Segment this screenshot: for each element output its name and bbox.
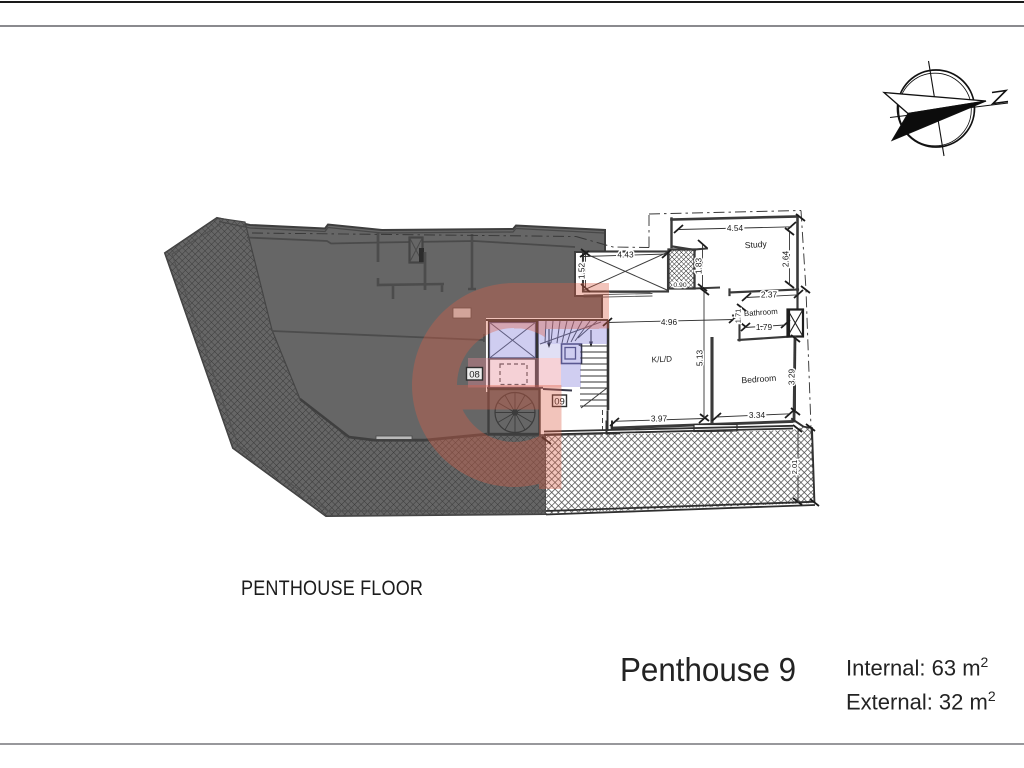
svg-text:Bedroom: Bedroom (741, 373, 776, 385)
svg-text:0.90: 0.90 (673, 282, 686, 289)
svg-text:1.71: 1.71 (734, 309, 743, 323)
svg-text:3.97: 3.97 (651, 414, 668, 424)
svg-text:2.64: 2.64 (781, 251, 791, 268)
svg-text:2.37: 2.37 (761, 290, 778, 300)
svg-text:2.01: 2.01 (790, 460, 799, 474)
svg-text:1.79: 1.79 (756, 322, 773, 332)
svg-text:Study: Study (744, 239, 767, 251)
svg-text:4.43: 4.43 (617, 250, 634, 260)
svg-text:1.52: 1.52 (577, 263, 587, 280)
svg-text:3.29: 3.29 (787, 369, 797, 386)
svg-text:3.34: 3.34 (749, 410, 766, 420)
svg-text:5.13: 5.13 (695, 350, 705, 367)
svg-text:K/L/D: K/L/D (651, 354, 672, 364)
svg-text:4.96: 4.96 (661, 317, 678, 327)
svg-text:08: 08 (469, 370, 480, 381)
svg-text:Bathroom: Bathroom (744, 307, 778, 318)
svg-text:1.83: 1.83 (694, 258, 704, 275)
svg-text:4.54: 4.54 (727, 223, 744, 233)
